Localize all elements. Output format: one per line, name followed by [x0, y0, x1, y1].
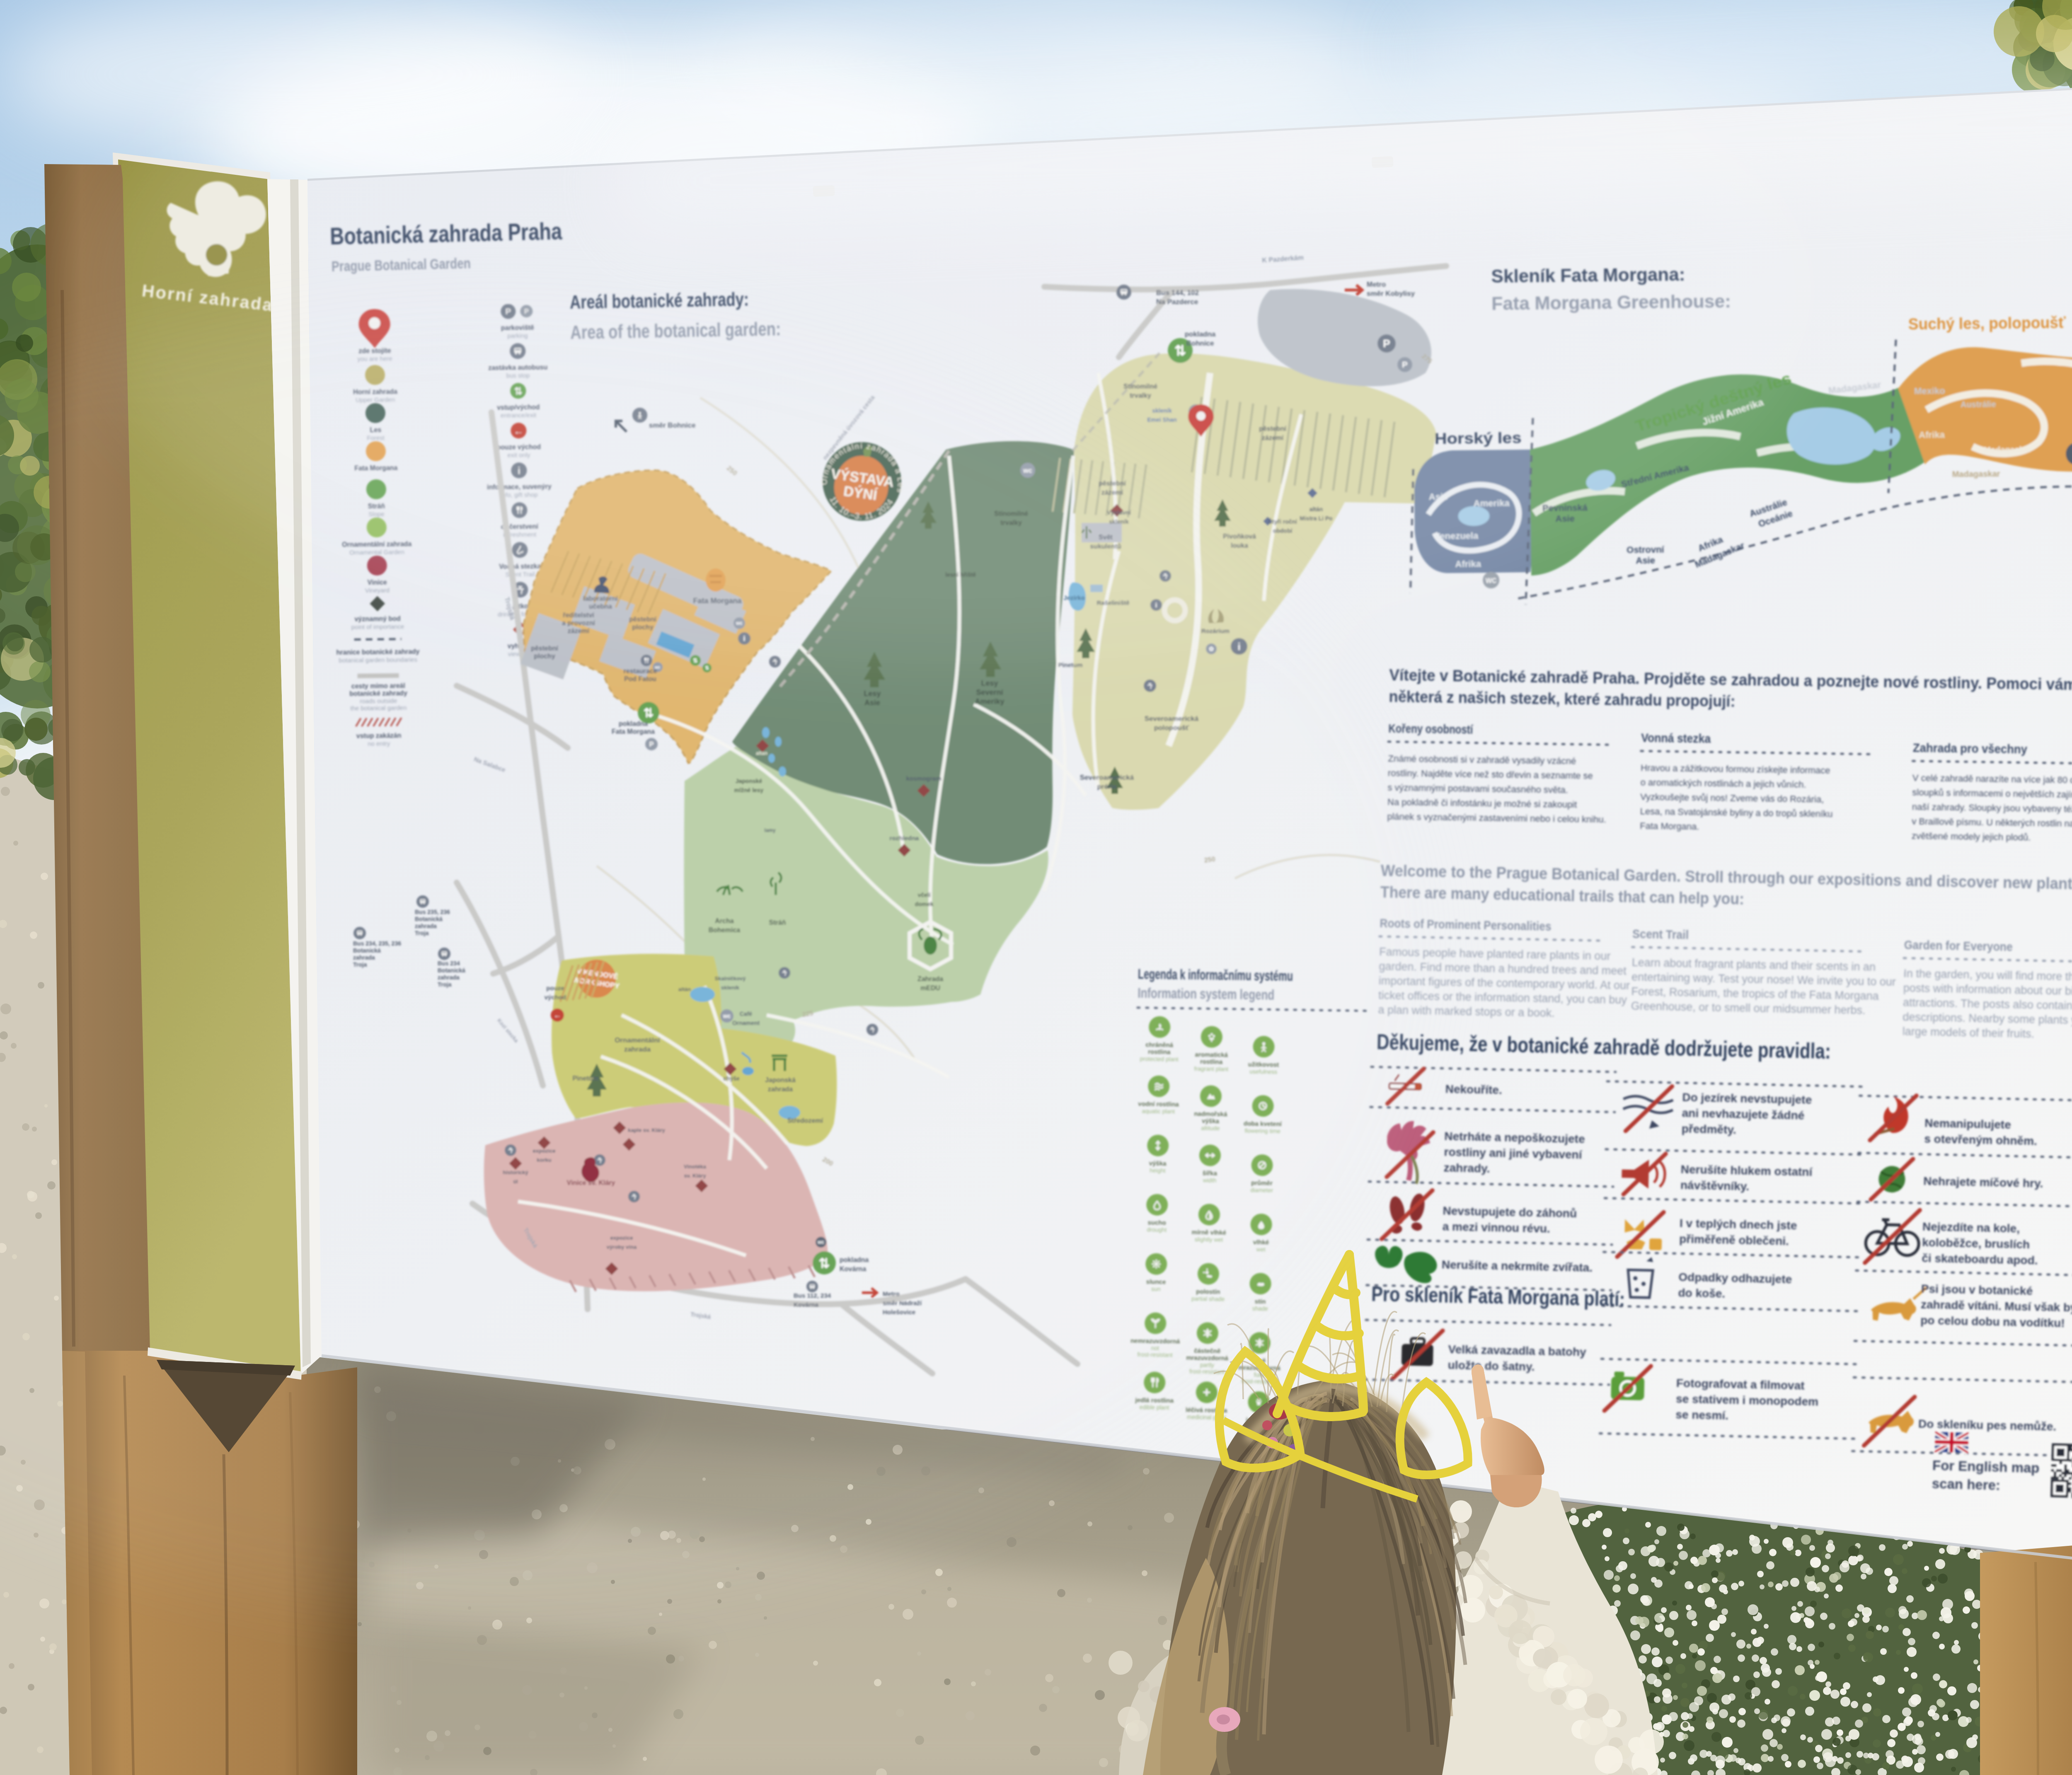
svg-text:Asie: Asie: [1636, 555, 1655, 566]
svg-text:zahrady.: zahrady.: [1443, 1161, 1490, 1175]
svg-text:se nesmí.: se nesmí.: [1675, 1408, 1728, 1422]
svg-text:Nekouříte.: Nekouříte.: [1445, 1083, 1502, 1097]
svg-text:Fata Morgana.: Fata Morgana.: [1640, 821, 1699, 832]
svg-text:Odpadky odhazujete: Odpadky odhazujete: [1678, 1270, 1792, 1286]
svg-text:Nejezdíte na kole,: Nejezdíte na kole,: [1922, 1220, 2020, 1235]
svg-text:Do jezírek nevstupujete: Do jezírek nevstupujete: [1682, 1091, 1812, 1107]
svg-text:I v teplých dnech jste: I v teplých dnech jste: [1680, 1216, 1797, 1232]
svg-text:Ostrovní: Ostrovní: [1627, 544, 1665, 555]
svg-text:Afrika: Afrika: [1919, 430, 1945, 440]
svg-text:Madagaskar: Madagaskar: [1984, 445, 2032, 454]
svg-text:Madagaskar: Madagaskar: [1952, 469, 2000, 479]
svg-text:large models of their fruits.: large models of their fruits.: [1902, 1025, 2034, 1040]
svg-text:Scent Trail: Scent Trail: [1632, 927, 1689, 942]
svg-text:Mexiko: Mexiko: [1914, 386, 1945, 397]
svg-text:Austrálie: Austrálie: [1961, 399, 1996, 409]
svg-text:uložte do šatny.: uložte do šatny.: [1447, 1359, 1535, 1373]
svg-text:Nemanipulujete: Nemanipulujete: [1924, 1117, 2011, 1131]
svg-text:ani nevhazujete žádné: ani nevhazujete žádné: [1682, 1107, 1804, 1122]
svg-text:Nehrajete míčové hry.: Nehrajete míčové hry.: [1923, 1175, 2043, 1190]
svg-text:koloběžce, bruslích: koloběžce, bruslích: [1922, 1236, 2030, 1251]
svg-text:For English map: For English map: [1932, 1458, 2040, 1476]
svg-text:a mezi vinnou révu.: a mezi vinnou révu.: [1442, 1220, 1550, 1235]
svg-text:s otevřeným ohněm.: s otevřeným ohněm.: [1924, 1132, 2037, 1148]
svg-text:Suchý les, polopoušť: Suchý les, polopoušť: [1908, 314, 2066, 333]
svg-text:přiměřeně oblečeni.: přiměřeně oblečeni.: [1679, 1232, 1789, 1248]
svg-text:do koše.: do koše.: [1678, 1286, 1725, 1300]
svg-text:scan here:: scan here:: [1932, 1476, 2000, 1493]
svg-text:Garden for Everyone: Garden for Everyone: [1904, 938, 2013, 953]
svg-text:zvětšené modely jejich plodů.: zvětšené modely jejich plodů.: [1912, 831, 2031, 843]
svg-text:či skateboardu apod.: či skateboardu apod.: [1922, 1252, 2038, 1267]
svg-text:Vonná stezka: Vonná stezka: [1641, 731, 1711, 745]
svg-text:Psi jsou v botanické: Psi jsou v botanické: [1921, 1282, 2033, 1298]
svg-text:Kořeny osobností: Kořeny osobností: [1388, 721, 1474, 736]
svg-text:Fotografovat a filmovat: Fotografovat a filmovat: [1676, 1376, 1805, 1392]
svg-text:předměty.: předměty.: [1682, 1122, 1736, 1137]
svg-text:Zahrada pro všechny: Zahrada pro všechny: [1913, 741, 2028, 756]
svg-text:návštěvníky.: návštěvníky.: [1680, 1178, 1750, 1192]
